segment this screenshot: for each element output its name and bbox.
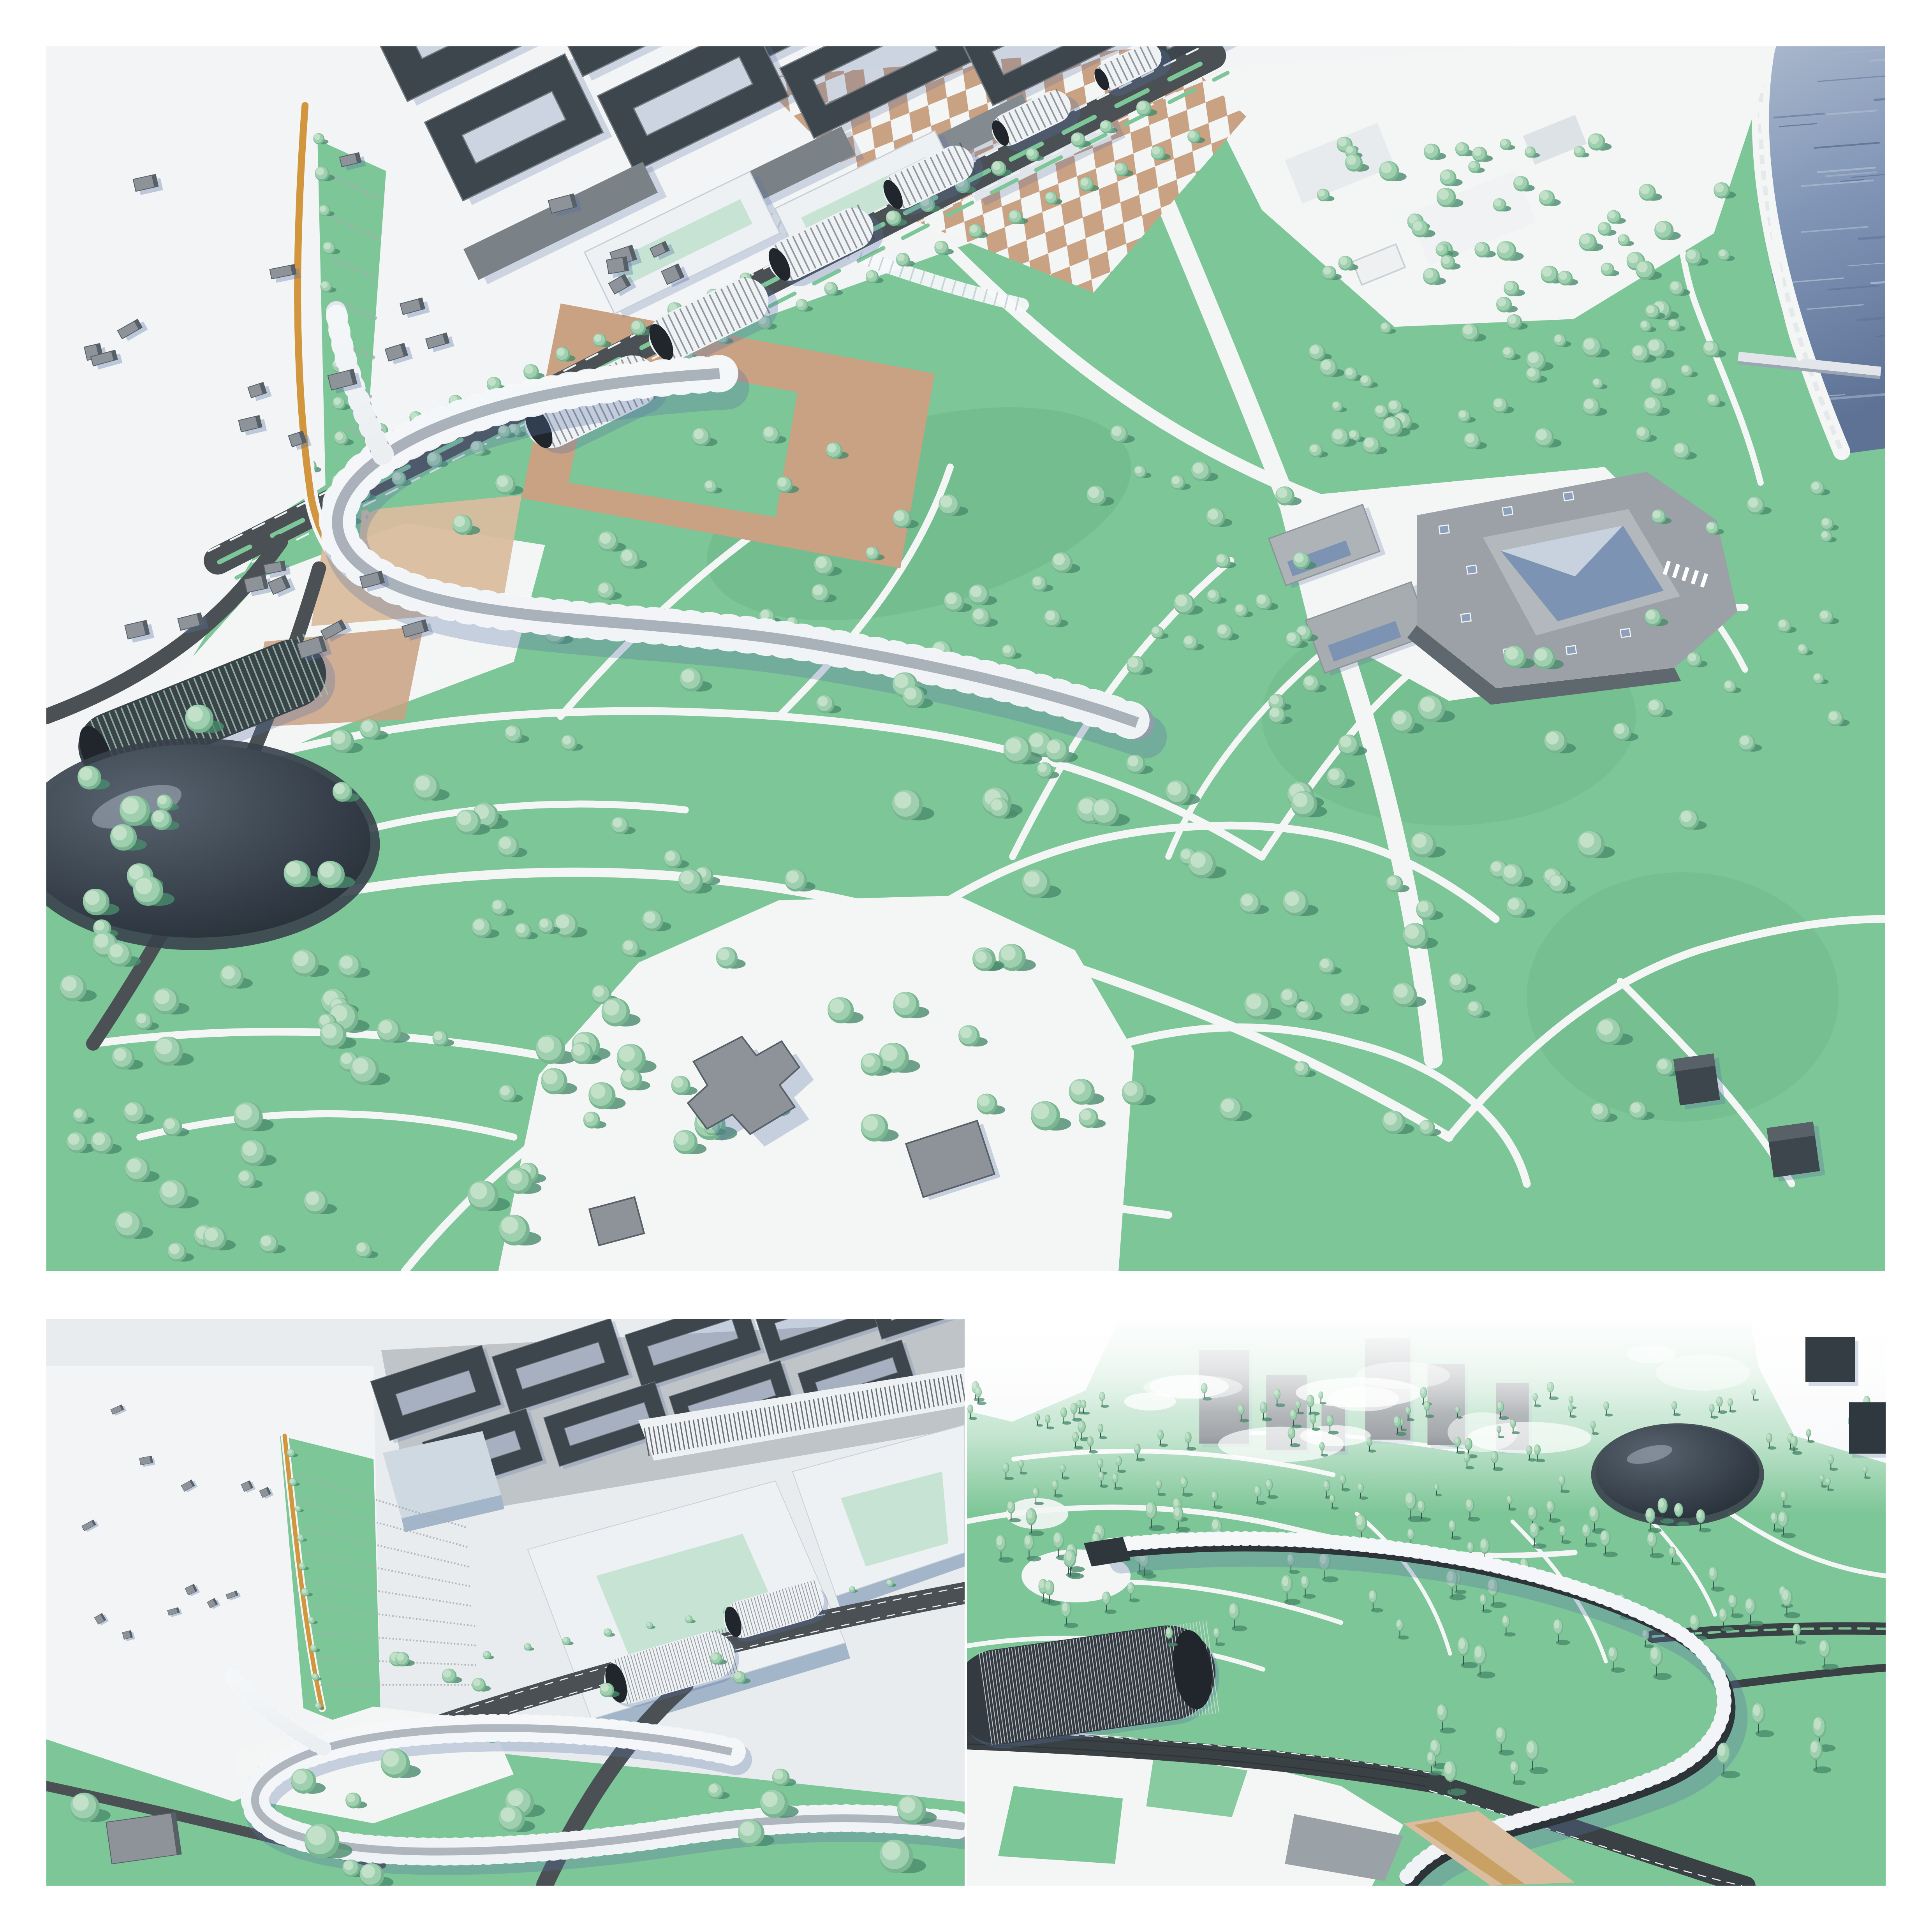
dark-cube-1 — [1673, 1053, 1725, 1110]
city-block — [1805, 1337, 1858, 1386]
city-block — [1849, 1402, 1886, 1458]
aerial-overview-panel — [46, 46, 1885, 1271]
bridge-closeup-west-rendering — [46, 1319, 965, 1886]
haze-thin — [967, 1319, 1886, 1412]
dark-cube-2 — [1767, 1121, 1825, 1182]
bridge-closeup-east-panel — [967, 1319, 1886, 1886]
bridge-closeup-east-rendering — [967, 1319, 1886, 1886]
bridge-closeup-west-panel — [46, 1319, 965, 1886]
aerial-overview-rendering — [46, 46, 1885, 1271]
